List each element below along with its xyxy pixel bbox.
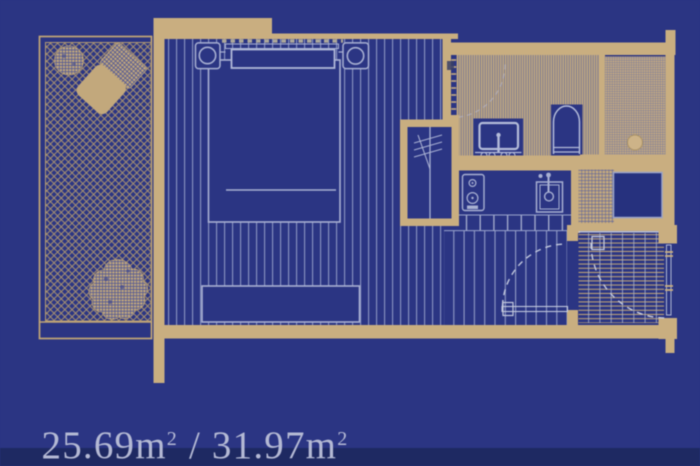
- svg-text:25.69m2 / 31.97m2: 25.69m2 / 31.97m2: [42, 424, 349, 466]
